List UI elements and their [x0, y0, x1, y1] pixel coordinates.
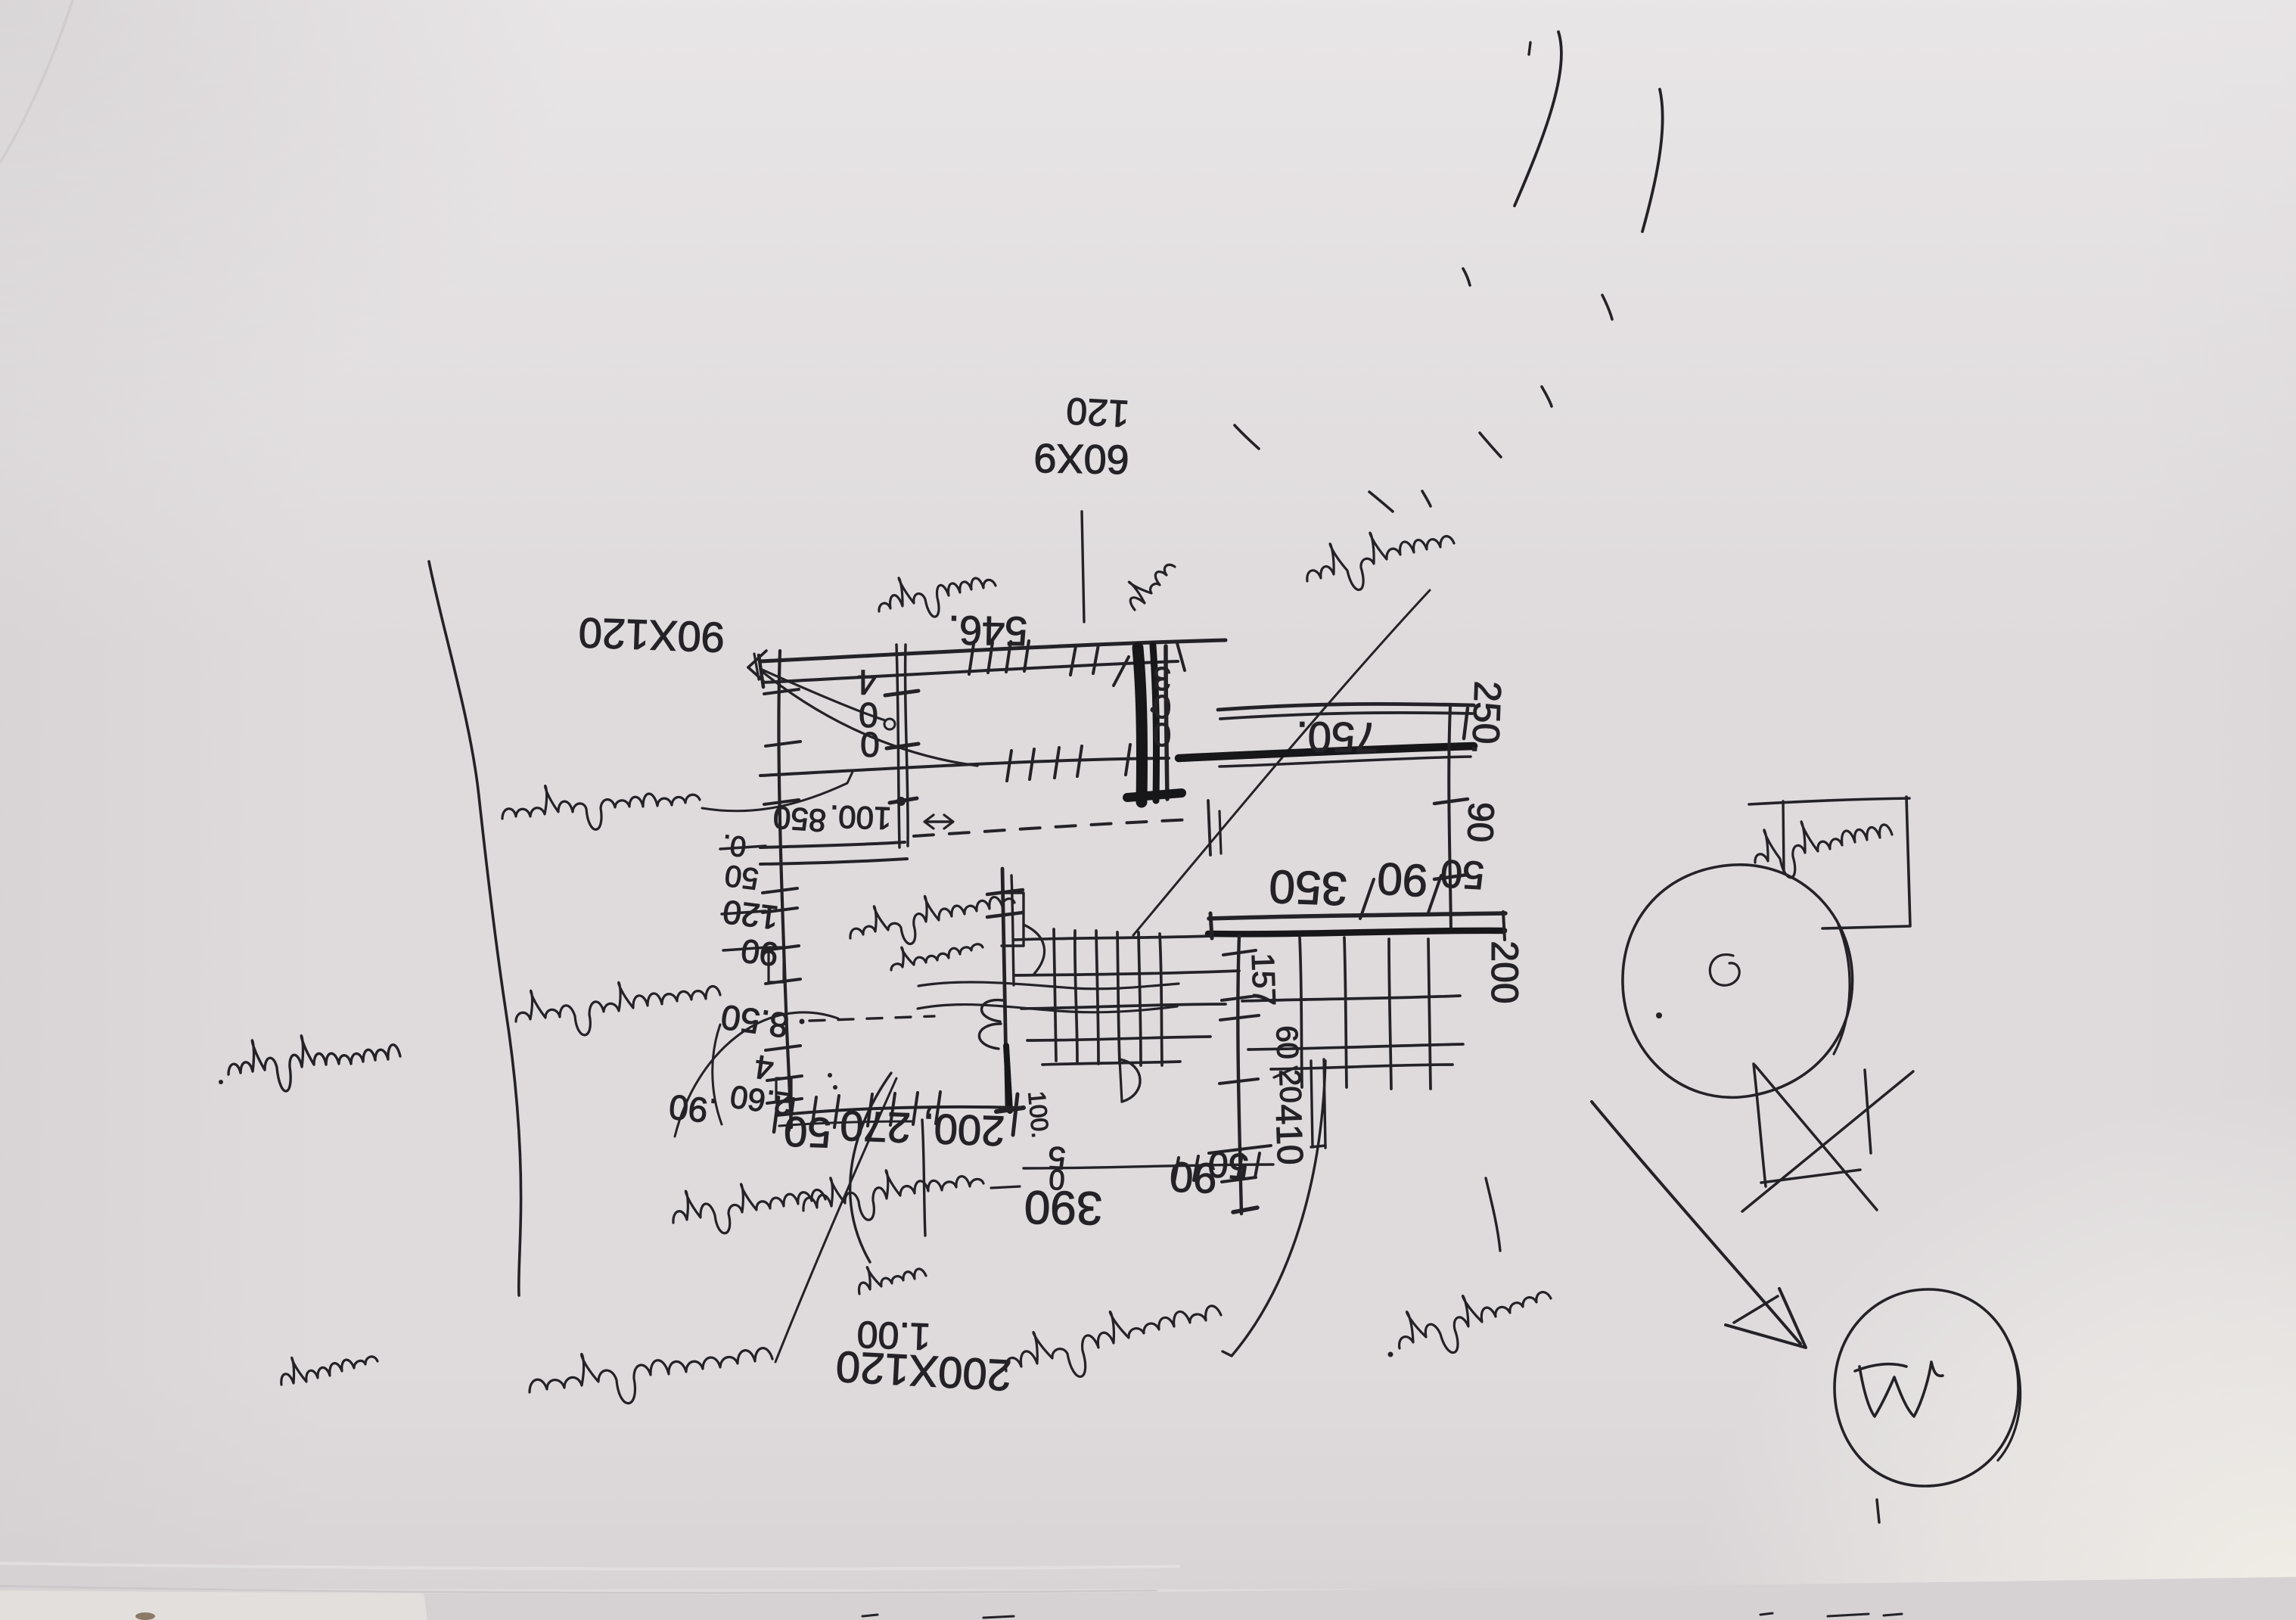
- svg-text:90: 90: [739, 931, 781, 973]
- svg-text:.90: .90: [667, 1087, 719, 1131]
- svg-text:200X120: 200X120: [834, 1342, 1012, 1400]
- svg-text:750.: 750.: [1296, 713, 1379, 762]
- svg-text:850: 850: [772, 800, 827, 839]
- svg-text:50: 50: [723, 858, 761, 895]
- svg-text:250.: 250.: [1464, 680, 1508, 755]
- svg-text:200: 200: [1484, 941, 1526, 1003]
- svg-text:350: 350: [1268, 860, 1348, 915]
- svg-text:50: 50: [1440, 851, 1486, 897]
- svg-text:390: 390: [1024, 1180, 1103, 1234]
- svg-text:120: 120: [721, 893, 781, 937]
- svg-text:50: 50: [783, 1108, 831, 1157]
- svg-text:50: 50: [1207, 1143, 1251, 1186]
- svg-text:0: 0: [860, 725, 880, 764]
- svg-text:90X120: 90X120: [578, 609, 725, 662]
- svg-text:100.: 100.: [829, 799, 892, 837]
- svg-text:410: 410: [1268, 1104, 1310, 1166]
- svg-text:0.: 0.: [720, 828, 748, 863]
- svg-text:0: 0: [1153, 716, 1171, 753]
- svg-text:100.: 100.: [1023, 1090, 1054, 1139]
- svg-text:157: 157: [1245, 953, 1282, 1007]
- svg-text:90: 90: [1459, 801, 1501, 843]
- svg-text:60X9: 60X9: [1033, 435, 1129, 482]
- svg-text:120: 120: [1065, 390, 1130, 435]
- svg-text:90: 90: [1376, 853, 1429, 906]
- svg-text:60: 60: [1269, 1025, 1304, 1060]
